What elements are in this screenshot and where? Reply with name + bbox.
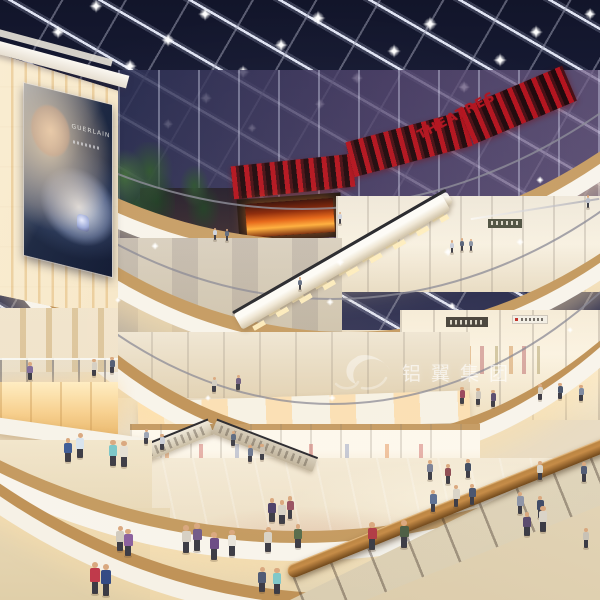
- person: [212, 377, 217, 392]
- person: [400, 520, 409, 548]
- watermark-logo: [332, 346, 394, 398]
- person: [539, 506, 547, 532]
- person: [517, 492, 524, 514]
- person: [260, 444, 265, 460]
- person: [537, 461, 543, 480]
- person: [268, 498, 276, 522]
- person: [264, 527, 272, 552]
- people-layer: [0, 0, 600, 600]
- person: [101, 564, 111, 596]
- person: [124, 529, 133, 556]
- person: [558, 383, 563, 399]
- person: [430, 490, 437, 512]
- person: [581, 462, 587, 482]
- person: [225, 229, 229, 241]
- watermark-text: 铝翼集团: [402, 359, 518, 386]
- person: [523, 512, 531, 536]
- person: [445, 464, 451, 484]
- person: [110, 357, 115, 373]
- person: [160, 434, 165, 450]
- watermark: 铝翼集团: [332, 346, 518, 398]
- person: [258, 567, 266, 592]
- person: [287, 496, 294, 519]
- person: [213, 228, 217, 240]
- person: [120, 441, 128, 467]
- person: [273, 568, 281, 594]
- person: [182, 525, 191, 553]
- person: [248, 445, 253, 462]
- person: [469, 239, 473, 251]
- person: [368, 522, 377, 550]
- person: [538, 384, 543, 400]
- person: [109, 440, 117, 466]
- person: [64, 438, 72, 462]
- person: [453, 485, 460, 507]
- person: [469, 484, 476, 505]
- person: [193, 523, 202, 551]
- person: [586, 195, 590, 208]
- mall-atrium-rendering: THEATRES GUERLAIN: [0, 0, 600, 600]
- person: [90, 562, 100, 594]
- person: [427, 460, 433, 480]
- person: [579, 385, 584, 401]
- person: [228, 530, 236, 556]
- person: [294, 524, 302, 548]
- person: [460, 238, 464, 251]
- person: [144, 429, 149, 444]
- person: [298, 277, 302, 290]
- person: [231, 431, 236, 446]
- person: [76, 433, 84, 458]
- person: [338, 212, 342, 224]
- person: [583, 528, 589, 548]
- person: [210, 532, 219, 560]
- person: [27, 362, 33, 380]
- person: [450, 240, 454, 253]
- person: [236, 375, 241, 390]
- person: [278, 500, 286, 524]
- person: [465, 459, 471, 478]
- person: [92, 359, 97, 376]
